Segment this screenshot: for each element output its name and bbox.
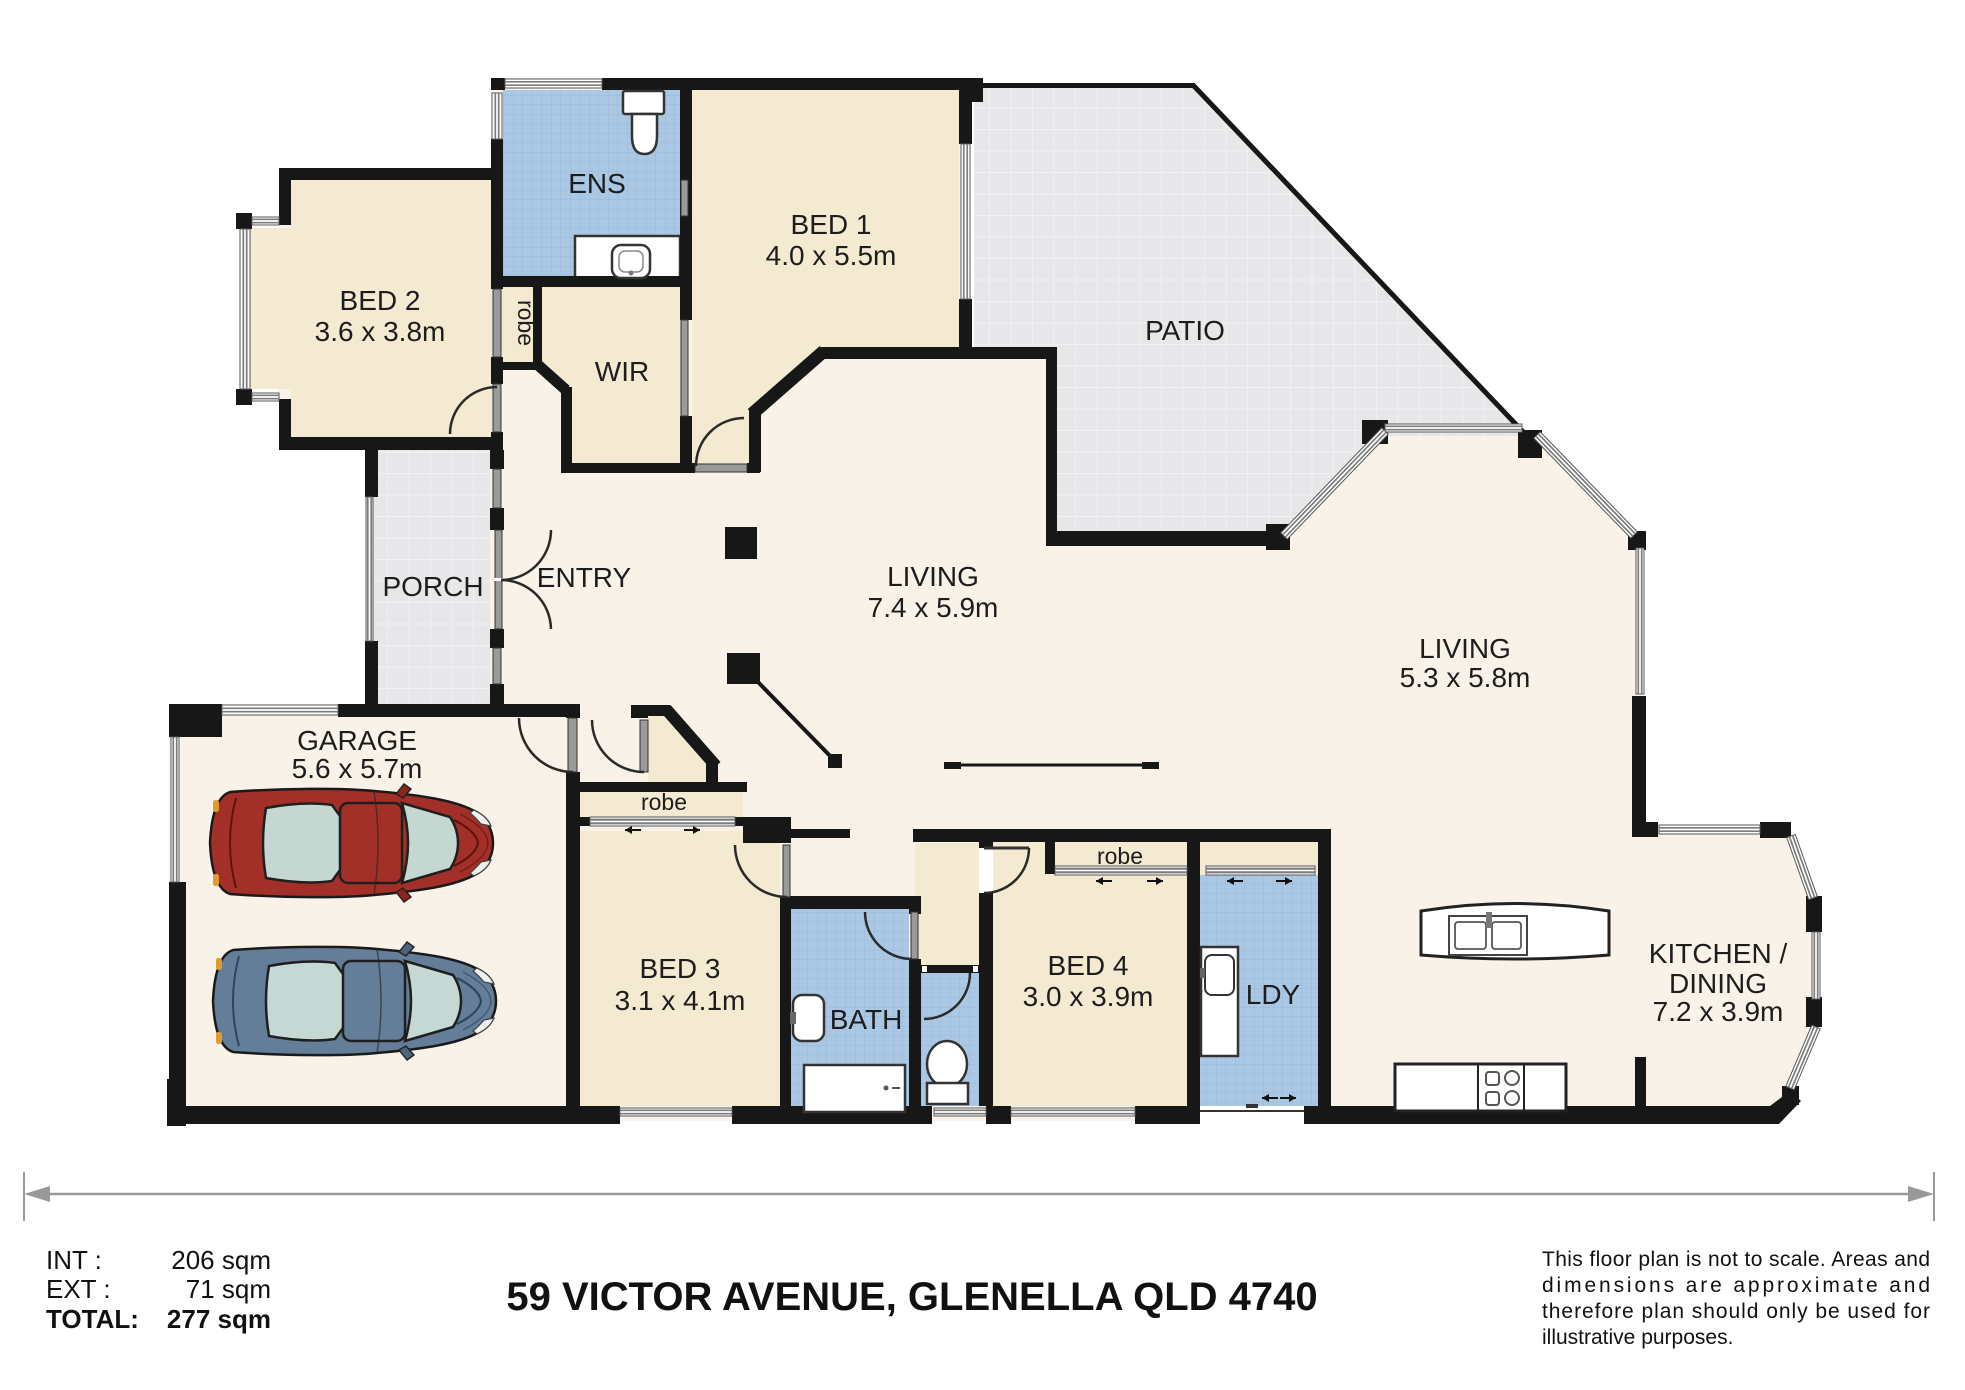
svg-text:7.2 x 3.9m: 7.2 x 3.9m — [1653, 996, 1784, 1027]
svg-text:LIVING: LIVING — [1419, 633, 1511, 664]
svg-text:59 VICTOR AVENUE, GLENELLA QLD: 59 VICTOR AVENUE, GLENELLA QLD 4740 — [506, 1275, 1317, 1319]
svg-text:GARAGE: GARAGE — [297, 725, 417, 756]
svg-text:ENS: ENS — [568, 168, 626, 199]
svg-text:LIVING: LIVING — [887, 561, 979, 592]
svg-text:71 sqm: 71 sqm — [186, 1274, 271, 1304]
svg-text:3.1 x 4.1m: 3.1 x 4.1m — [615, 985, 746, 1016]
svg-text:7.4 x 5.9m: 7.4 x 5.9m — [868, 592, 999, 623]
svg-text:dimensions are approximate and: dimensions are approximate and — [1542, 1274, 1930, 1297]
svg-text:5.6 x 5.7m: 5.6 x 5.7m — [292, 753, 423, 784]
svg-text:robe: robe — [641, 789, 687, 815]
svg-text:PATIO: PATIO — [1145, 315, 1225, 346]
svg-text:BED 4: BED 4 — [1048, 950, 1129, 981]
svg-text:277 sqm: 277 sqm — [167, 1304, 271, 1334]
svg-text:EXT :: EXT : — [46, 1274, 111, 1304]
svg-text:3.6 x 3.8m: 3.6 x 3.8m — [315, 316, 446, 347]
svg-text:DINING: DINING — [1669, 968, 1767, 999]
svg-text:INT :: INT : — [46, 1245, 102, 1275]
svg-text:LDY: LDY — [1246, 979, 1301, 1010]
svg-text:3.0 x 3.9m: 3.0 x 3.9m — [1023, 981, 1154, 1012]
svg-text:WIR: WIR — [595, 356, 649, 387]
svg-text:206 sqm: 206 sqm — [171, 1245, 271, 1275]
svg-text:robe: robe — [1097, 843, 1143, 869]
svg-text:therefore plan should only be: therefore plan should only be used for — [1542, 1300, 1930, 1323]
svg-text:This floor plan is not to scal: This floor plan is not to scale. Areas a… — [1542, 1248, 1930, 1271]
svg-text:robe: robe — [513, 300, 539, 346]
svg-text:ENTRY: ENTRY — [537, 562, 632, 593]
svg-text:KITCHEN /: KITCHEN / — [1649, 938, 1788, 969]
svg-text:5.3 x 5.8m: 5.3 x 5.8m — [1400, 662, 1531, 693]
svg-text:BED 3: BED 3 — [640, 953, 721, 984]
svg-text:BED 1: BED 1 — [791, 209, 872, 240]
svg-text:TOTAL:: TOTAL: — [46, 1304, 139, 1334]
svg-text:PORCH: PORCH — [382, 571, 483, 602]
svg-text:illustrative purposes.: illustrative purposes. — [1542, 1326, 1733, 1349]
svg-text:BATH: BATH — [830, 1004, 903, 1035]
svg-text:BED 2: BED 2 — [340, 285, 421, 316]
svg-text:4.0 x 5.5m: 4.0 x 5.5m — [766, 240, 897, 271]
